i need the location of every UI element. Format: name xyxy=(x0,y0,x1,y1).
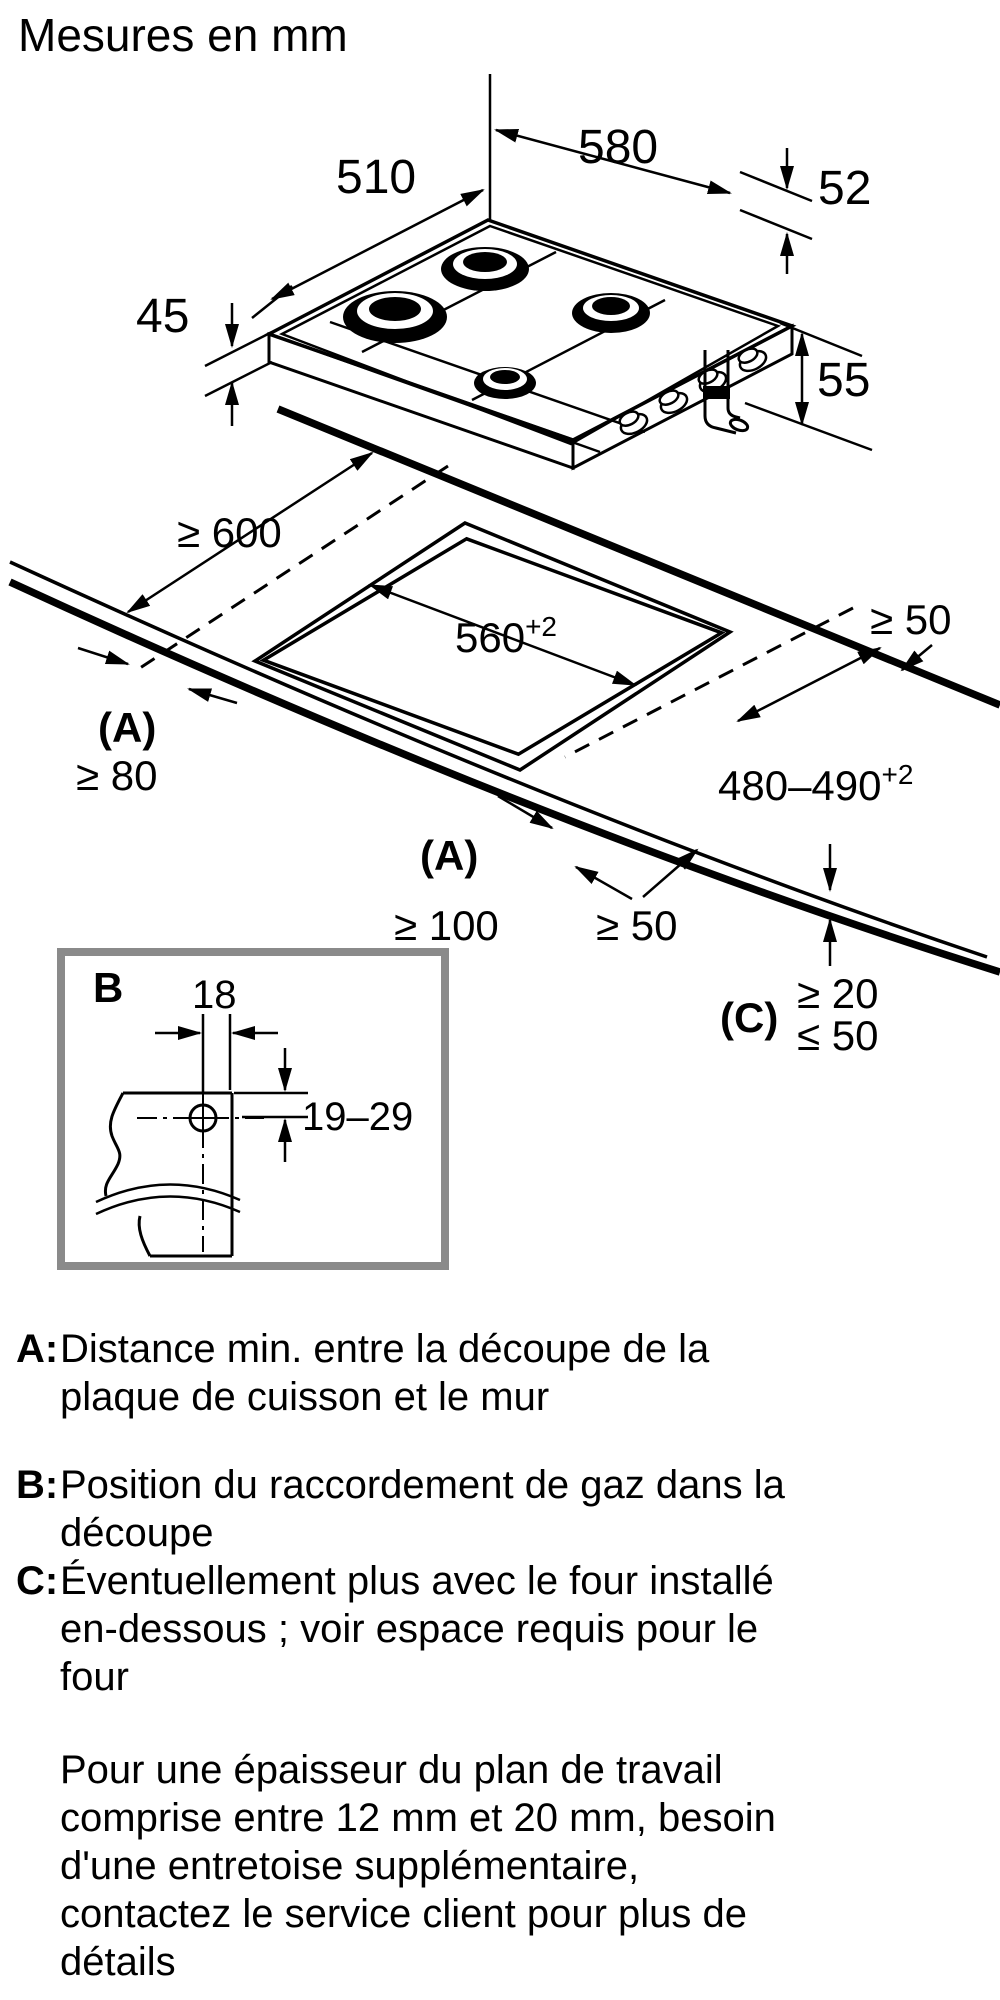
wall-a-left-label: (A) xyxy=(98,704,156,751)
burner-front-left xyxy=(343,291,447,343)
legend-text-a: Distance min. entre la découpe de la pla… xyxy=(60,1325,709,1421)
clearance-600-label: ≥ 600 xyxy=(177,509,282,556)
edge-c-label: (C) xyxy=(720,994,778,1041)
edge-max-label: ≤ 50 xyxy=(797,1012,878,1059)
dim-55-label: 55 xyxy=(817,354,870,407)
wall-80-label: ≥ 80 xyxy=(76,752,157,799)
burner-back-center xyxy=(441,247,529,291)
worktop-thickness-note: Pour une épaisseur du plan de travail co… xyxy=(60,1746,960,1986)
installation-sheet: Mesures en mm xyxy=(0,0,1000,2000)
dim-52-label: 52 xyxy=(818,162,871,215)
legend-key-c: C: xyxy=(16,1557,60,1605)
dim-580-label: 580 xyxy=(578,121,658,174)
installation-diagram: 510 580 52 45 55 xyxy=(0,0,1000,1310)
dim-510-label: 510 xyxy=(336,151,416,204)
cutout-width-label: 560+2 xyxy=(455,611,557,661)
dim-45-label: 45 xyxy=(136,290,189,343)
hob-drawing xyxy=(269,220,792,468)
edge-min-label: ≥ 20 xyxy=(797,970,878,1017)
gap-50-front-label: ≥ 50 xyxy=(596,902,677,949)
worktop-cutout-drawing xyxy=(10,409,1000,972)
cutout-depth-label: 480–490+2 xyxy=(718,759,913,809)
back-wall-line xyxy=(278,409,1000,705)
gap-50-right-label: ≥ 50 xyxy=(870,596,951,643)
burner-front-center xyxy=(474,367,536,399)
projection-dashed-left xyxy=(140,466,448,668)
legend-key-a: A: xyxy=(16,1325,60,1373)
burner-right xyxy=(572,293,650,333)
wall-a-front-label: (A) xyxy=(420,832,478,879)
detail-b-box: B 18 xyxy=(61,952,445,1266)
gas-depth-label: 19–29 xyxy=(302,1095,413,1139)
gas-offset-label: 18 xyxy=(192,973,237,1017)
detail-b-title: B xyxy=(93,964,123,1011)
legend-text-b: Position du raccordement de gaz dans la … xyxy=(60,1461,785,1557)
legend-item-a: A: Distance min. entre la découpe de la … xyxy=(16,1325,976,1421)
legend-key-b: B: xyxy=(16,1461,60,1509)
legend-items-b-c: B: Position du raccordement de gaz dans … xyxy=(16,1461,976,1701)
legend-text-c: Éventuellement plus avec le four install… xyxy=(60,1557,774,1701)
wall-100-label: ≥ 100 xyxy=(394,902,499,949)
